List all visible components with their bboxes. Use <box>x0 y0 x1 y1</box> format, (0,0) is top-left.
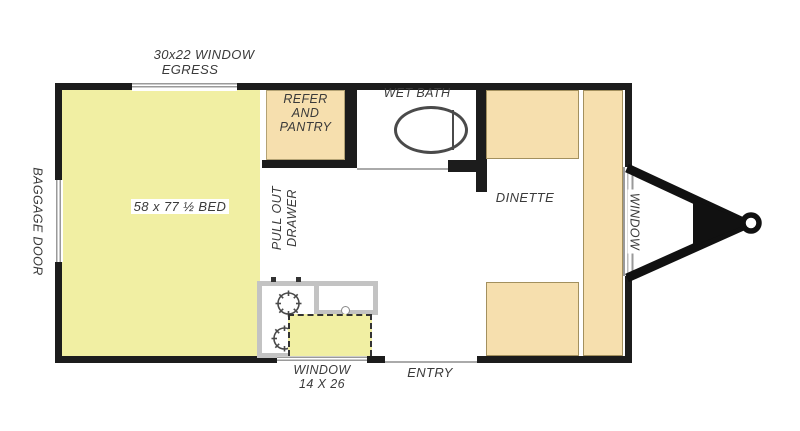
dinette-side-cabinet <box>583 90 623 356</box>
wetbath-bottom-wall <box>448 160 487 172</box>
wet-bath-label: WET BATH <box>360 86 474 100</box>
refer-pantry-label-line1: REFER <box>266 92 345 106</box>
side-window-label: WINDOW <box>627 162 642 282</box>
dinette-seat-top <box>486 90 579 159</box>
refer-pantry-label: REFER AND PANTRY <box>266 92 345 134</box>
egress-window <box>132 83 237 91</box>
pullout-counter-extension <box>288 314 372 356</box>
baggage-door <box>55 180 63 262</box>
wetbath-left-wall <box>345 90 357 168</box>
galley-window <box>277 356 367 363</box>
refer-pantry-label-line3: PANTRY <box>266 120 345 134</box>
bathtub-seat-line <box>452 110 454 150</box>
bed-label: 58 x 77 ½ BED <box>105 200 255 214</box>
pull-out-drawer-label: PULL OUT DRAWER <box>270 166 302 270</box>
side-window-label-text: WINDOW <box>628 190 642 253</box>
floorplan-canvas: 30x22 WINDOW EGRESS BAGGAGE DOOR 58 x 77… <box>0 0 800 431</box>
counter-hinge-icon <box>271 277 276 282</box>
bathtub-icon <box>394 106 468 154</box>
egress-window-label-line1: 30x22 WINDOW <box>129 48 279 62</box>
counter-hinge-icon <box>296 277 301 282</box>
entry-label: ENTRY <box>388 366 472 380</box>
entry-door <box>385 356 477 363</box>
galley-window-label-line2: 14 X 26 <box>272 377 372 391</box>
egress-window-label-line2: EGRESS <box>125 63 255 77</box>
galley-window-label-line1: WINDOW <box>272 363 372 377</box>
dinette-label: DINETTE <box>475 191 575 205</box>
trailer-hitch-icon <box>625 160 770 290</box>
dinette-seat-bottom <box>486 282 579 356</box>
bed-area <box>62 90 260 356</box>
wetbath-door-threshold <box>357 168 448 170</box>
refer-pantry-label-line2: AND <box>266 106 345 120</box>
bed-label-text: 58 x 77 ½ BED <box>131 199 230 214</box>
pull-out-drawer-label-line2: DRAWER <box>285 166 300 270</box>
baggage-door-label: BAGGAGE DOOR <box>30 162 45 282</box>
pull-out-drawer-label-line1: PULL OUT <box>270 166 285 270</box>
